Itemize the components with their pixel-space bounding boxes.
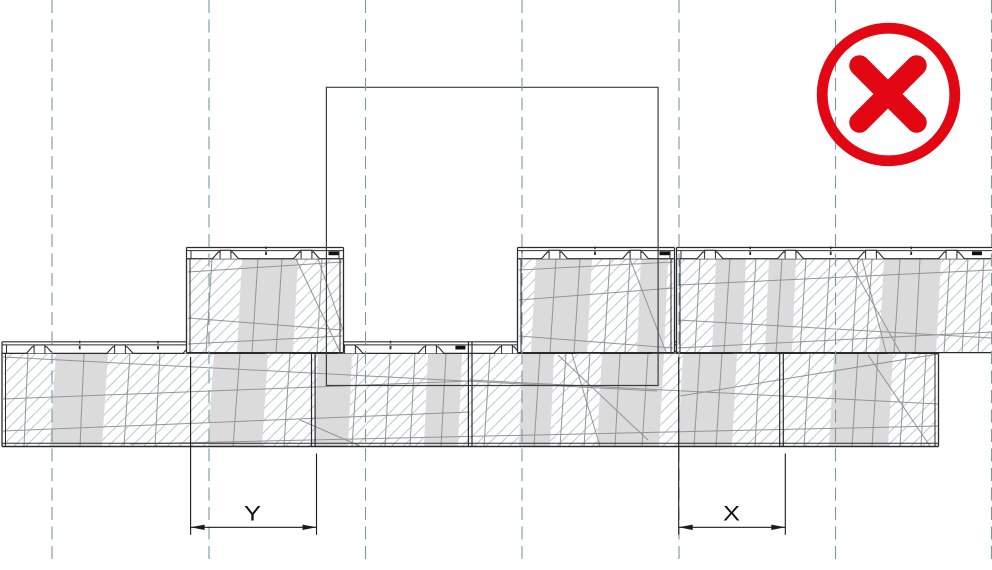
svg-text:Y: Y xyxy=(244,503,261,526)
svg-text:X: X xyxy=(723,503,740,526)
